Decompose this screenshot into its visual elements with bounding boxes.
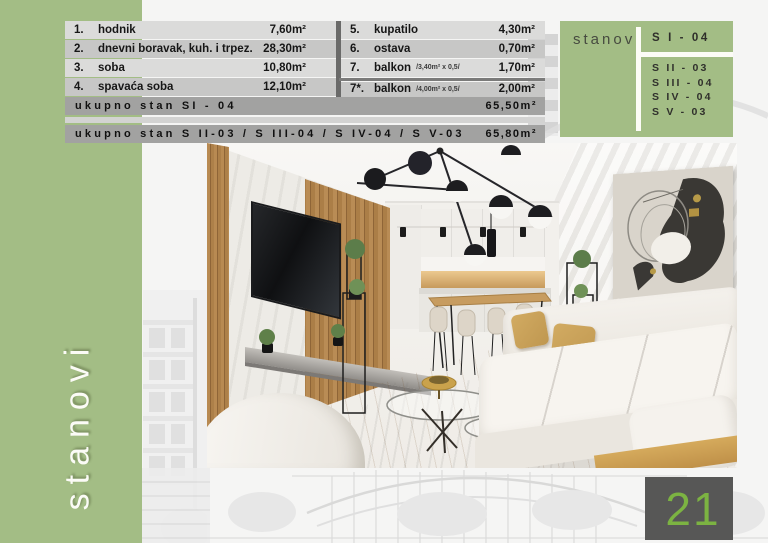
apartments-panel-title: stanovi (573, 31, 642, 48)
total-label: ukupno stan S II-03 / S III-04 / S IV-04… (65, 128, 465, 140)
sofa-pillow (510, 310, 549, 349)
total-label: ukupno stan SI - 04 (65, 100, 237, 112)
brochure-page: stanovi (0, 0, 768, 543)
apartments-panel: stanovi S I - 04 S II - 03 S III - 04 S … (560, 21, 733, 137)
row-value: 10,80m² (263, 62, 336, 74)
page-number-box: 21 (645, 477, 733, 540)
row-number: 6. (341, 43, 374, 55)
total-bar-others: ukupno stan S II-03 / S III-04 / S IV-04… (65, 125, 545, 143)
row-label: soba (98, 62, 125, 74)
row-value: 0,70m² (499, 43, 545, 55)
row-number: 1. (65, 24, 98, 36)
interior-render-photo (207, 143, 737, 468)
row-label: hodnik (98, 24, 136, 36)
apartment-item: S II - 03 (652, 61, 714, 76)
row-number: 3. (65, 62, 98, 74)
row-value: 12,10m² (263, 81, 336, 93)
table-row: 6. ostava 0,70m² (341, 40, 545, 58)
apartment-item: S IV - 04 (652, 90, 714, 105)
row-value: 2,00m² (499, 83, 545, 95)
row-label: balkon (374, 62, 411, 74)
row-label: kupatilo (374, 24, 418, 36)
table-row: 7*. balkon /4,00m² x 0,5/ 2,00m² (341, 82, 545, 97)
table-row: 7. balkon /3,40m² x 0,5/ 1,70m² (341, 59, 545, 77)
total-bar-s1: ukupno stan SI - 04 65,50m² (65, 97, 545, 115)
row-label: balkon (374, 83, 411, 95)
panel-horizontal-line (641, 52, 733, 57)
total-value: 65,50m² (486, 100, 545, 112)
apartment-item: S III - 04 (652, 76, 714, 91)
row-number: 2. (65, 43, 98, 55)
row-number: 7*. (341, 83, 374, 95)
row-label: ostava (374, 43, 410, 55)
total-value: 65,80m² (486, 128, 545, 140)
panel-vertical-line (636, 27, 641, 131)
variant-divider-line (339, 78, 545, 81)
apartment-item-primary: S I - 04 (652, 32, 710, 44)
row-note: /3,40m² x 0,5/ (416, 64, 460, 71)
apartment-item: S V - 03 (652, 105, 714, 120)
table-row: 3. soba 10,80m² (65, 59, 336, 77)
apartment-list: S II - 03 S III - 04 S IV - 04 S V - 03 (652, 61, 714, 120)
sidebar-vertical-title: stanovi (59, 340, 98, 511)
table-row: 4. spavaća soba 12,10m² (65, 78, 336, 96)
row-label: dnevni boravak, kuh. i trpez. (98, 43, 253, 55)
row-label: spavaća soba (98, 81, 173, 93)
row-value: 28,30m² (263, 43, 336, 55)
table-row: 2. dnevni boravak, kuh. i trpez. 28,30m² (65, 40, 336, 58)
page-number: 21 (657, 482, 720, 536)
row-value: 1,70m² (499, 62, 545, 74)
row-number: 4. (65, 81, 98, 93)
row-value: 4,30m² (499, 24, 545, 36)
row-value: 7,60m² (270, 24, 336, 36)
row-number: 5. (341, 24, 374, 36)
row-number: 7. (341, 62, 374, 74)
row-note: /4,00m² x 0,5/ (416, 86, 460, 93)
table-row: 1. hodnik 7,60m² (65, 21, 336, 39)
bar-gap (65, 117, 545, 123)
table-row: 5. kupatilo 4,30m² (341, 21, 545, 39)
